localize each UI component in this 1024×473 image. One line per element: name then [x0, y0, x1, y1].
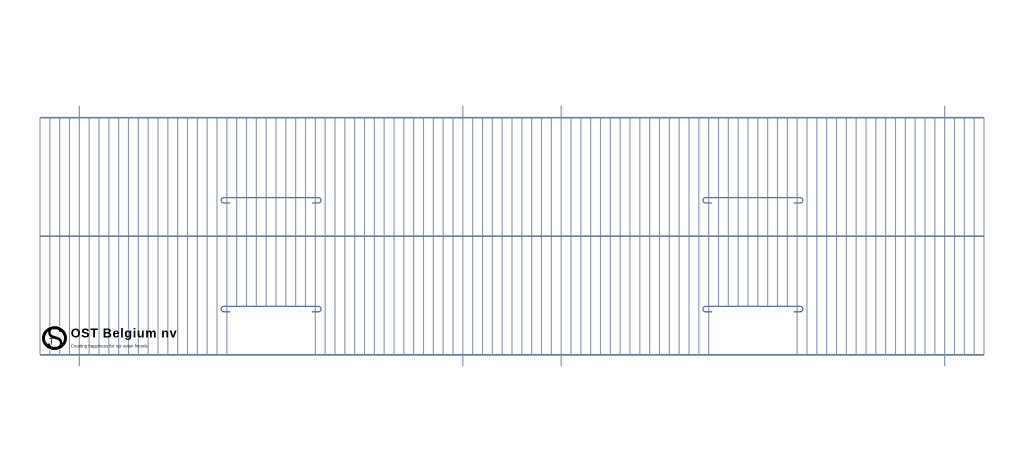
svg-text:T: T	[49, 337, 55, 347]
svg-text:Creating happiness for our avi: Creating happiness for our avian friends	[71, 343, 149, 348]
svg-text:OST Belgium nv: OST Belgium nv	[71, 327, 178, 341]
